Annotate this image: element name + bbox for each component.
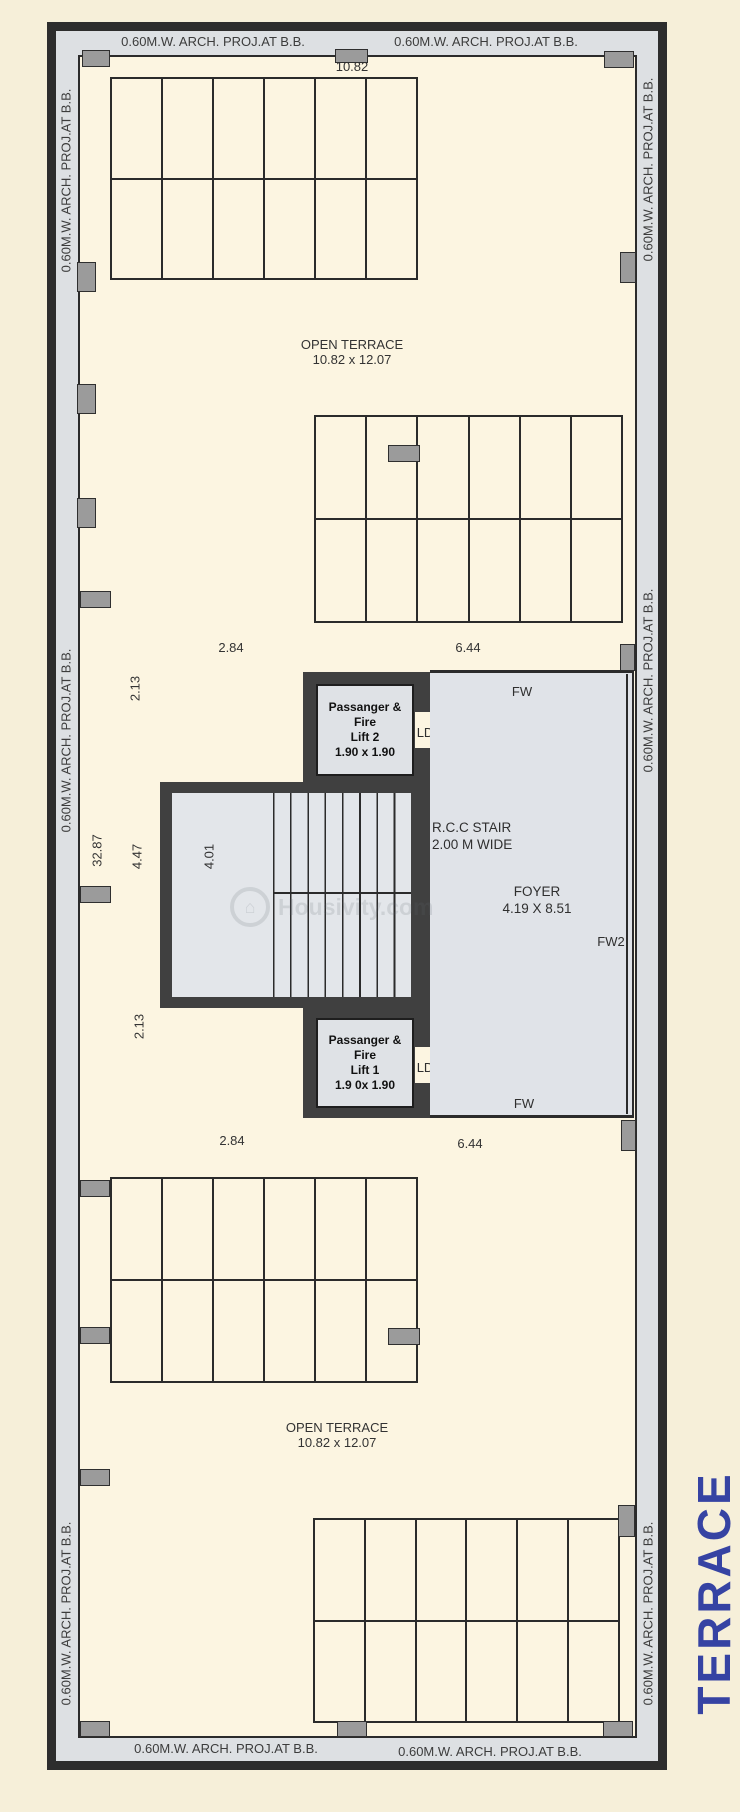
pergola-cell: [315, 1280, 366, 1382]
dimension-landing-width: 4.01: [202, 827, 217, 887]
pergola-cell: [365, 1621, 416, 1723]
column-marker: [620, 644, 635, 671]
foyer-window-label-top: FW: [500, 684, 544, 699]
open-terrace-label-top: OPEN TERRACE 10.82 x 12.07: [252, 337, 452, 367]
band-label-bottom-right: 0.60M.W. ARCH. PROJ.AT B.B.: [387, 1744, 593, 1759]
pergola-cell: [416, 1621, 467, 1723]
pergola-cell: [469, 519, 520, 622]
column-marker: [618, 1505, 635, 1537]
lift1-text-line: Passanger &: [329, 1033, 402, 1048]
pergola-cell: [213, 1178, 264, 1280]
dimension-right-span-bottom: 6.44: [440, 1136, 500, 1151]
pergola-cell: [162, 1178, 213, 1280]
column-marker: [80, 591, 111, 608]
terrace-title: TERRACE: [687, 1383, 733, 1803]
pergola-cell: [466, 1621, 517, 1723]
stair-note: R.C.C STAIR 2.00 M WIDE: [432, 819, 552, 853]
pergola-cell: [366, 1178, 417, 1280]
column-marker: [80, 1327, 110, 1344]
stair-note-line2: 2.00 M WIDE: [432, 836, 552, 853]
pergola-cell: [264, 1178, 315, 1280]
pergola-cell: [213, 78, 264, 179]
pergola-cell: [520, 416, 571, 519]
pergola-cell: [568, 1621, 619, 1723]
column-marker: [604, 51, 634, 68]
pergola-cell: [366, 179, 417, 280]
lift1-text-line: Fire: [354, 1048, 376, 1063]
lift1-cabin: Passanger & Fire Lift 1 1.9 0x 1.90: [316, 1018, 414, 1108]
band-label-left-top: 0.60M.W. ARCH. PROJ.AT B.B.: [59, 71, 74, 291]
open-terrace-size: 10.82 x 12.07: [252, 352, 452, 367]
band-label-left-bottom: 0.60M.W. ARCH. PROJ.AT B.B.: [59, 1504, 74, 1724]
lift1-text-line: 1.9 0x 1.90: [335, 1078, 395, 1093]
pergola-cell: [314, 1621, 365, 1723]
watermark-text: Housivity.com: [278, 894, 434, 921]
foyer-size: 4.19 X 8.51: [477, 900, 597, 917]
column-marker: [621, 1120, 636, 1151]
lift2-text-line: Fire: [354, 715, 376, 730]
pergola-cell: [264, 1280, 315, 1382]
pergola-grid-bottom-right: [313, 1518, 620, 1723]
lift2-text-line: 1.90 x 1.90: [335, 745, 395, 760]
pergola-cell: [416, 1519, 467, 1621]
foyer-name: FOYER: [477, 883, 597, 900]
watermark: ⌂ Housivity.com: [230, 885, 490, 929]
pergola-cell: [162, 78, 213, 179]
band-label-left-middle: 0.60M.W. ARCH. PROJ.AT B.B.: [59, 631, 74, 851]
dimension-right-span-top: 6.44: [438, 640, 498, 655]
pergola-cell: [111, 179, 162, 280]
watermark-logo-icon: ⌂: [230, 887, 270, 927]
column-marker: [80, 1180, 110, 1197]
open-terrace-label-bottom: OPEN TERRACE 10.82 x 12.07: [237, 1420, 437, 1450]
pergola-cell: [365, 1519, 416, 1621]
pergola-cell: [162, 179, 213, 280]
pergola-cell: [315, 519, 366, 622]
stair-note-line1: R.C.C STAIR: [432, 819, 552, 836]
pergola-cell: [366, 519, 417, 622]
column-marker: [603, 1721, 633, 1737]
pergola-cell: [417, 519, 468, 622]
band-label-top-left: 0.60M.W. ARCH. PROJ.AT B.B.: [110, 34, 316, 49]
lift2-text-line: Lift 2: [351, 730, 380, 745]
pergola-cell: [366, 78, 417, 179]
dimension-lift1-offset: 2.13: [132, 997, 147, 1057]
dimension-left-span-top: 2.84: [201, 640, 261, 655]
pergola-cell: [162, 1280, 213, 1382]
pergola-grid-lower-left: [110, 1177, 418, 1383]
pergola-grid-top-left: [110, 77, 418, 280]
pergola-cell: [315, 78, 366, 179]
column-marker: [80, 886, 111, 903]
lift2-cabin: Passanger & Fire Lift 2 1.90 x 1.90: [316, 684, 414, 776]
pergola-cell: [315, 1178, 366, 1280]
pergola-cell: [111, 1280, 162, 1382]
pergola-cell: [568, 1519, 619, 1621]
pergola-cell: [111, 1178, 162, 1280]
pergola-cell: [111, 78, 162, 179]
band-label-right-middle: 0.60M.W. ARCH. PROJ.AT B.B.: [641, 571, 656, 791]
band-label-right-top: 0.60M.W. ARCH. PROJ.AT B.B.: [641, 60, 656, 280]
column-marker: [337, 1721, 367, 1737]
pergola-cell: [466, 1519, 517, 1621]
pergola-cell: [517, 1519, 568, 1621]
pergola-grid-upper-right: [314, 415, 623, 623]
pergola-cell: [571, 519, 622, 622]
band-label-bottom-left: 0.60M.W. ARCH. PROJ.AT B.B.: [123, 1741, 329, 1756]
foyer-window-inner-line: [626, 674, 628, 1114]
foyer-label: FOYER 4.19 X 8.51: [477, 883, 597, 917]
column-marker: [82, 50, 110, 67]
pergola-cell: [469, 416, 520, 519]
column-marker: [620, 252, 636, 283]
dimension-stair-depth: 4.47: [130, 827, 145, 887]
dimension-left-span-bottom: 2.84: [202, 1133, 262, 1148]
pergola-cell: [314, 1519, 365, 1621]
pergola-cell: [520, 519, 571, 622]
foyer-window2-label: FW2: [588, 934, 634, 949]
terrace-floor-plan: 0.60M.W. ARCH. PROJ.AT B.B. 0.60M.W. ARC…: [0, 0, 740, 1812]
pergola-cell: [213, 1280, 264, 1382]
pergola-cell: [517, 1621, 568, 1723]
pergola-cell: [264, 179, 315, 280]
column-marker: [335, 49, 368, 63]
foyer-window-label-bottom: FW: [502, 1096, 546, 1111]
pergola-cell: [264, 78, 315, 179]
pergola-cell: [417, 416, 468, 519]
column-marker: [388, 445, 420, 462]
column-marker: [80, 1721, 110, 1737]
pergola-cell: [213, 179, 264, 280]
column-marker: [77, 498, 96, 528]
open-terrace-name: OPEN TERRACE: [252, 337, 452, 352]
dimension-total-depth: 32.87: [90, 816, 105, 886]
band-label-right-bottom: 0.60M.W. ARCH. PROJ.AT B.B.: [641, 1504, 656, 1724]
dimension-lift2-offset: 2.13: [128, 659, 143, 719]
band-label-top-right: 0.60M.W. ARCH. PROJ.AT B.B.: [383, 34, 589, 49]
pergola-cell: [315, 416, 366, 519]
column-marker: [80, 1469, 110, 1486]
lift2-text-line: Passanger &: [329, 700, 402, 715]
pergola-cell: [315, 179, 366, 280]
lift1-text-line: Lift 1: [351, 1063, 380, 1078]
pergola-cell: [571, 416, 622, 519]
column-marker: [77, 262, 96, 292]
open-terrace-name: OPEN TERRACE: [237, 1420, 437, 1435]
open-terrace-size: 10.82 x 12.07: [237, 1435, 437, 1450]
column-marker: [388, 1328, 420, 1345]
column-marker: [77, 384, 96, 414]
pergola-cell: [366, 416, 417, 519]
